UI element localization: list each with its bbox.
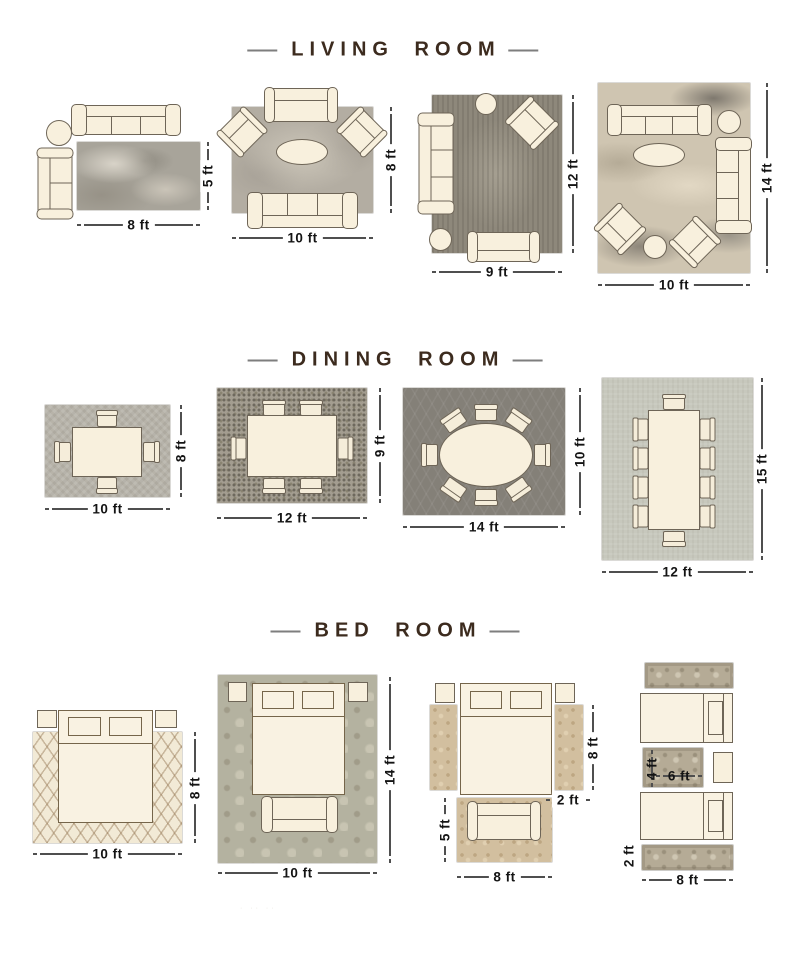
- round-side-table: [475, 93, 497, 115]
- dimension-label: 12 ft: [272, 511, 312, 526]
- headboard: [461, 684, 551, 717]
- dimension-label: 10 ft: [282, 231, 322, 246]
- queen-bed: [58, 710, 153, 823]
- dimension-label: 10 ft: [654, 278, 694, 293]
- watermark: · ·· ··: [240, 905, 277, 912]
- dimension-vertical: 8 ft: [584, 705, 602, 790]
- headboard: [723, 793, 731, 839]
- chair-back: [545, 443, 551, 467]
- nightstand: [348, 682, 368, 702]
- chaise-sofa: [38, 148, 73, 218]
- sofa-cushion: [50, 183, 72, 211]
- dimension-horizontal: 2 ft: [546, 791, 590, 809]
- three-seat-sofa: [249, 193, 356, 228]
- sofa-arm: [165, 104, 181, 135]
- sofa-seats: [475, 233, 532, 251]
- queen-bed: [252, 683, 345, 795]
- oval-coffee-table: [633, 143, 685, 167]
- dining-chair: [422, 444, 438, 466]
- dimension-horizontal: 8 ft: [642, 871, 733, 889]
- sofa-cushion: [83, 116, 112, 134]
- section-title-text: DINING ROOM: [292, 349, 505, 372]
- dimension-horizontal: 10 ft: [45, 500, 170, 518]
- sofa-cushion: [717, 173, 739, 199]
- sofa-cushion: [269, 798, 329, 820]
- sofa-cushion: [50, 155, 72, 182]
- pillow: [262, 691, 294, 710]
- dining-chair: [634, 447, 649, 469]
- dimension-horizontal: 8 ft: [77, 216, 200, 234]
- dimension-label: 9 ft: [373, 429, 388, 461]
- chair-back: [662, 541, 686, 547]
- chair-back: [299, 488, 323, 494]
- dimension-horizontal: 14 ft: [403, 518, 565, 536]
- three-seat-sofa: [73, 105, 180, 135]
- three-seat-sofa: [419, 113, 454, 213]
- dimension-label: 8 ft: [122, 218, 154, 233]
- sofa-seats: [618, 116, 700, 134]
- sofa-arm: [71, 104, 87, 135]
- bedroom-bench: [262, 797, 337, 832]
- chair-back: [154, 441, 160, 462]
- dining-chair: [300, 478, 322, 493]
- pillow: [708, 701, 724, 735]
- dimension-horizontal: 10 ft: [232, 229, 373, 247]
- dimension-label: 8 ft: [384, 144, 399, 176]
- dimension-horizontal: 12 ft: [217, 509, 367, 527]
- dimension-label: 14 ft: [760, 158, 775, 198]
- sofa-back: [269, 818, 329, 830]
- nightstand: [37, 710, 57, 728]
- dimension-label: 8 ft: [671, 873, 703, 888]
- dining-chair: [700, 447, 715, 469]
- chair-back: [474, 500, 498, 506]
- sofa-arm: [261, 796, 272, 833]
- round-ottoman: [643, 235, 667, 259]
- dimension-label: 12 ft: [566, 154, 581, 194]
- dimension-vertical: 15 ft: [753, 378, 771, 560]
- dining-chair: [232, 437, 247, 459]
- dimension-label: 5 ft: [438, 814, 453, 846]
- nightstand: [155, 710, 177, 728]
- sofa-arm: [327, 87, 338, 123]
- title-dash-icon: [490, 630, 520, 632]
- sofa-arm: [715, 220, 752, 234]
- dimension-vertical: 8 ft: [186, 732, 204, 843]
- chair-back: [348, 436, 354, 460]
- dimension-label: 6 ft: [665, 769, 693, 784]
- dimension-vertical: 14 ft: [758, 83, 776, 273]
- dimension-label: 4 ft: [645, 754, 660, 782]
- section-title-text: BED ROOM: [315, 620, 482, 643]
- dimension-label: 15 ft: [755, 449, 770, 489]
- sofa-cushion: [259, 194, 287, 216]
- dimension-label: 2 ft: [552, 793, 584, 808]
- sofa-arm: [37, 208, 74, 219]
- sofa-cushion: [272, 100, 329, 121]
- chair-back: [633, 446, 639, 470]
- sofa-back: [259, 214, 345, 226]
- dimension-vertical: 4 ft: [643, 750, 661, 787]
- queen-bed: [460, 683, 552, 795]
- chair-back: [262, 400, 286, 406]
- sofa-cushion: [475, 815, 532, 838]
- dimension-vertical: 5 ft: [199, 142, 217, 210]
- runner-rug-2x8: [645, 663, 733, 688]
- sofa-seats: [475, 815, 532, 838]
- dining-chair: [263, 478, 285, 493]
- dining-chair: [663, 531, 685, 546]
- sofa-seats: [269, 798, 329, 820]
- dimension-vertical: 5 ft: [436, 798, 454, 862]
- sofa-arm: [697, 104, 712, 135]
- chair-back: [710, 446, 716, 470]
- three-seat-sofa: [608, 105, 710, 135]
- sofa-arm: [528, 231, 539, 262]
- chair-back: [710, 417, 716, 441]
- dimension-label: 14 ft: [464, 520, 504, 535]
- pillow: [68, 717, 101, 736]
- blanket-fold-line: [703, 793, 704, 839]
- headboard: [253, 684, 344, 717]
- sofa-arm: [341, 192, 357, 229]
- sofa-back: [475, 250, 532, 261]
- sofa-cushion: [475, 233, 532, 251]
- dimension-horizontal: 6 ft: [656, 767, 702, 785]
- dining-chair: [663, 395, 685, 410]
- dining-chair: [55, 442, 71, 462]
- dimension-label: 14 ft: [383, 750, 398, 790]
- dimension-label: 5 ft: [201, 160, 216, 192]
- three-seat-sofa: [716, 138, 751, 233]
- sofa-cushion: [431, 149, 453, 176]
- blanket-fold-line: [703, 694, 704, 742]
- title-dash-icon: [247, 49, 277, 51]
- dimension-label: 8 ft: [174, 435, 189, 467]
- chair-back: [262, 488, 286, 494]
- sofa-arm: [418, 112, 455, 127]
- twin-bed: [640, 693, 733, 743]
- dining-chair: [475, 405, 497, 421]
- chair-back: [96, 410, 117, 416]
- runner-rug-2x8: [642, 845, 733, 870]
- nightstand: [228, 682, 247, 702]
- sofa-cushion: [431, 123, 453, 149]
- sofa-arm: [37, 147, 74, 158]
- dining-table: [247, 415, 337, 477]
- dining-chair: [263, 401, 285, 416]
- sofa-arm: [607, 104, 622, 135]
- dimension-label: 12 ft: [657, 565, 697, 580]
- section-title-bed-room: BED ROOM: [271, 620, 520, 643]
- dining-chair: [634, 476, 649, 498]
- chair-back: [54, 441, 60, 462]
- chair-back: [633, 475, 639, 499]
- dimension-horizontal: 10 ft: [33, 845, 182, 863]
- sofa-cushion: [316, 194, 345, 216]
- headboard: [59, 711, 152, 744]
- sofa-arm: [326, 796, 337, 833]
- sofa-seats: [717, 147, 739, 223]
- nightstand: [555, 683, 575, 703]
- dimension-label: 8 ft: [188, 771, 203, 803]
- dimension-label: 10 ft: [573, 431, 588, 471]
- dimension-horizontal: 10 ft: [598, 276, 750, 294]
- sofa-seats: [259, 194, 345, 216]
- sofa-seats: [50, 155, 72, 211]
- chair-back: [662, 394, 686, 400]
- sofa-arm: [247, 192, 263, 229]
- dimension-vertical: 8 ft: [382, 107, 400, 213]
- chair-back: [710, 475, 716, 499]
- chair-back: [474, 404, 498, 410]
- sofa-cushion: [646, 116, 674, 134]
- dimension-label: 2 ft: [622, 840, 637, 872]
- dimension-vertical: 10 ft: [571, 388, 589, 515]
- sofa-seats: [431, 123, 453, 203]
- chair-back: [96, 488, 117, 494]
- sofa-arm: [418, 200, 455, 215]
- headboard: [723, 694, 731, 742]
- dimension-vertical: 8 ft: [172, 405, 190, 497]
- round-ottoman: [429, 228, 452, 251]
- section-title-text: LIVING ROOM: [291, 39, 500, 62]
- loveseat: [265, 88, 337, 122]
- dimension-vertical: 2 ft: [620, 842, 638, 870]
- dining-chair: [700, 476, 715, 498]
- dimension-label: 10 ft: [277, 866, 317, 881]
- nightstand: [435, 683, 455, 703]
- sofa-cushion: [431, 176, 453, 203]
- twin-bed: [640, 792, 733, 840]
- dimension-vertical: 14 ft: [381, 677, 399, 863]
- dimension-vertical: 9 ft: [371, 388, 389, 503]
- round-side-table: [46, 120, 72, 146]
- sofa-cushion: [618, 116, 646, 134]
- dining-chair: [300, 401, 322, 416]
- chair-back: [299, 400, 323, 406]
- chair-back: [421, 443, 427, 467]
- sofa-arm: [467, 231, 478, 262]
- sofa-seats: [83, 116, 169, 134]
- dining-chair: [634, 505, 649, 527]
- dimension-label: 10 ft: [87, 502, 127, 517]
- section-title-living-room: LIVING ROOM: [247, 39, 538, 62]
- dimension-horizontal: 8 ft: [457, 868, 552, 886]
- sofa-arm: [715, 136, 752, 150]
- chair-back: [710, 504, 716, 528]
- nightstand: [713, 752, 733, 783]
- dining-chair: [634, 418, 649, 440]
- round-side-table: [717, 110, 741, 134]
- sofa-cushion: [112, 116, 141, 134]
- area-rug-8x5: [77, 142, 200, 210]
- title-dash-icon: [271, 630, 301, 632]
- dimension-label: 10 ft: [87, 847, 127, 862]
- chair-back: [633, 417, 639, 441]
- sofa-arm: [467, 801, 478, 840]
- dimension-label: 9 ft: [481, 265, 513, 280]
- section-title-dining-room: DINING ROOM: [248, 349, 543, 372]
- dimension-vertical: 12 ft: [564, 95, 582, 253]
- dimension-label: 8 ft: [488, 870, 520, 885]
- dining-chair: [97, 477, 117, 493]
- dining-table: [648, 410, 700, 530]
- pillow: [510, 691, 542, 710]
- oval-coffee-table: [276, 139, 328, 165]
- pillow: [708, 800, 724, 832]
- sofa-arm: [530, 801, 541, 840]
- dining-chair: [534, 444, 550, 466]
- dimension-horizontal: 9 ft: [432, 263, 562, 281]
- pillow: [470, 691, 502, 710]
- dining-chair: [700, 505, 715, 527]
- pillow: [302, 691, 334, 710]
- chair-back: [633, 504, 639, 528]
- chair-back: [231, 436, 237, 460]
- runner-rug-2x8: [430, 705, 457, 790]
- title-dash-icon: [512, 359, 542, 361]
- loveseat: [468, 232, 539, 262]
- dining-chair: [700, 418, 715, 440]
- dimension-label: 8 ft: [586, 731, 601, 763]
- dining-chair: [338, 437, 353, 459]
- dimension-horizontal: 10 ft: [218, 864, 377, 882]
- pillow: [109, 717, 142, 736]
- dining-chair: [143, 442, 159, 462]
- sofa-seats: [272, 100, 329, 121]
- sofa-arm: [264, 87, 275, 123]
- title-dash-icon: [248, 359, 278, 361]
- title-dash-icon: [509, 49, 539, 51]
- dimension-horizontal: 12 ft: [602, 563, 753, 581]
- dining-table: [72, 427, 142, 477]
- dining-chair: [97, 411, 117, 427]
- sofa-back: [737, 147, 749, 223]
- dining-chair: [475, 489, 497, 505]
- bedroom-bench: [468, 803, 540, 840]
- sofa-cushion: [287, 194, 316, 216]
- runner-rug-2x8: [555, 705, 583, 790]
- rug-size-guide-canvas: LIVING ROOM DINING ROOM BED ROOM · ·· ··…: [0, 0, 800, 978]
